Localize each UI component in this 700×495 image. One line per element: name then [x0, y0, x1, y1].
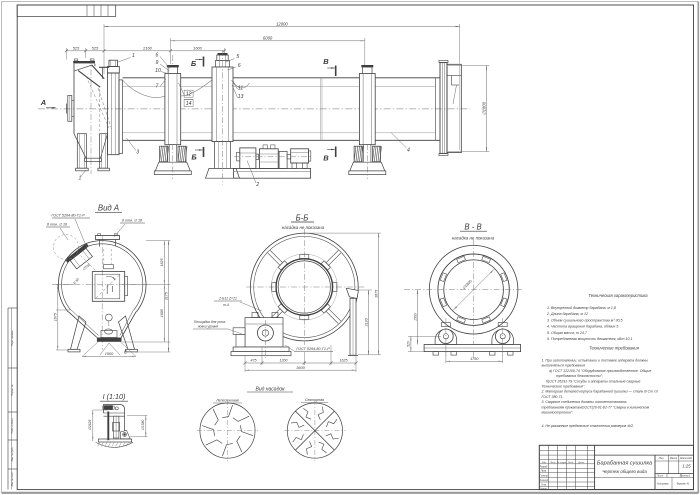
svg-text:Листов 1: Листов 1: [679, 475, 691, 478]
svg-text:6000: 6000: [263, 36, 273, 41]
svg-text:Лист: Лист: [656, 475, 663, 478]
svg-text:1625: 1625: [340, 359, 348, 363]
svg-text:3. Сварные соединения должны с: 3. Сварные соединения должны соответство…: [542, 400, 627, 404]
svg-text:12000: 12000: [276, 21, 288, 26]
svg-text:Секторная: Секторная: [305, 398, 324, 402]
svg-text:Пров.: Пров.: [541, 471, 547, 473]
svg-text:В: В: [323, 57, 329, 66]
svg-text:3675: 3675: [374, 290, 378, 298]
svg-text:2: 2: [255, 182, 259, 188]
svg-text:А: А: [40, 98, 46, 107]
svg-text:т-4: т-4: [223, 303, 229, 307]
svg-text:2. Длина барабана, м 12: 2. Длина барабана, м 12: [546, 312, 588, 316]
svg-text:насадка не показана: насадка не показана: [452, 236, 495, 241]
svg-text:Площадка для уста-: Площадка для уста-: [194, 320, 227, 324]
svg-text:Т.контр.: Т.контр.: [539, 475, 549, 477]
svg-text:ГОСТ 5264-80-Т1-Р: ГОСТ 5264-80-Т1-Р: [296, 347, 330, 351]
svg-text:Технические требования".: Технические требования".: [542, 385, 586, 389]
svg-text:Справ. №: Справ. №: [11, 384, 14, 395]
svg-text:1750: 1750: [470, 357, 479, 361]
svg-text:Чертеж общего вида: Чертеж общего вида: [602, 469, 647, 474]
svg-text:4. Частота вращения барабана,: 4. Частота вращения барабана, об/мин 5: [547, 325, 618, 329]
svg-text:1. Внутренний диаметр барабана: 1. Внутренний диаметр барабана, м 1,8: [547, 306, 616, 310]
svg-text:525: 525: [73, 45, 80, 50]
svg-text:Дата: Дата: [577, 462, 585, 464]
svg-text:∅1800: ∅1800: [481, 101, 486, 115]
svg-text:12: 12: [186, 92, 192, 98]
svg-text:машиностроении".: машиностроении".: [542, 411, 574, 415]
svg-text:475: 475: [251, 359, 257, 363]
svg-text:11: 11: [238, 86, 243, 92]
svg-text:2. Материал деталей корпуса ба: 2. Материал деталей корпуса барабанной с…: [541, 390, 658, 394]
svg-text:4: 4: [407, 148, 410, 154]
svg-text:1: 1: [132, 53, 135, 59]
svg-text:∅1580: ∅1580: [141, 420, 145, 431]
svg-text:В - В: В - В: [464, 223, 481, 232]
svg-text:9: 9: [156, 60, 159, 66]
svg-text:4. Не указанные предельные отк: 4. Не указанные предельные отклонения ра…: [542, 424, 635, 428]
svg-text:10: 10: [155, 68, 161, 74]
svg-text:1600: 1600: [193, 45, 202, 50]
svg-text:Разраб.: Разраб.: [540, 466, 549, 468]
svg-text:В: В: [323, 154, 329, 163]
svg-text:1500: 1500: [105, 352, 114, 356]
svg-text:Б-Б: Б-Б: [296, 213, 309, 222]
svg-text:13: 13: [238, 94, 244, 100]
svg-text:№ докум.: № докум.: [557, 461, 567, 464]
svg-text:выполняться требования: выполняться требования: [542, 364, 586, 368]
svg-text:8 отв. ∅ 18: 8 отв. ∅ 18: [47, 223, 67, 227]
svg-text:1. При изготовлении, испытании: 1. При изготовлении, испытании и поставк…: [542, 359, 649, 363]
svg-text:3. Объем сушильного пространст: 3. Объем сушильного пространства м³ 30,5: [547, 318, 622, 322]
svg-text:Техническая характеристика: Техническая характеристика: [588, 293, 648, 298]
svg-text:требованиям прокатамООСТ(26-01: требованиям прокатамООСТ(26-01-82-77 "Св…: [542, 405, 650, 409]
svg-text:Вид насадок: Вид насадок: [256, 387, 286, 393]
svg-text:2-Б12 Z=21: 2-Б12 Z=21: [218, 297, 237, 301]
svg-text:требования безопасности";: требования безопасности";: [556, 374, 603, 378]
svg-text:3175: 3175: [164, 292, 168, 300]
svg-text:2120: 2120: [364, 318, 368, 327]
svg-text:6: 6: [238, 63, 241, 69]
svg-text:Лит.: Лит.: [658, 457, 665, 460]
svg-text:Копировал: Копировал: [657, 484, 669, 486]
svg-text:а) ГОСТ 122100-74 "Оборудовани: а) ГОСТ 122100-74 "Оборудование производ…: [549, 369, 651, 373]
svg-text:1: 1: [78, 176, 81, 182]
svg-text:Лепестковая: Лепестковая: [215, 399, 239, 403]
svg-text:Подп.: Подп.: [568, 461, 574, 464]
svg-text:Инв. № подл.: Инв. № подл.: [11, 471, 14, 486]
svg-text:5: 5: [236, 54, 239, 60]
svg-text:Б: Б: [191, 59, 197, 68]
svg-text:Подп. и дата: Подп. и дата: [11, 418, 14, 434]
svg-text:Н.контр.: Н.контр.: [539, 480, 549, 482]
svg-text:525: 525: [92, 45, 99, 50]
svg-text:Барабанная сушилка: Барабанная сушилка: [597, 461, 652, 467]
svg-text:Перв. примен.: Перв. примен.: [11, 330, 14, 346]
svg-text:14: 14: [186, 101, 192, 107]
svg-text:насадка не показана: насадка не показана: [282, 225, 325, 230]
svg-text:∅2625: ∅2625: [88, 420, 92, 431]
svg-text:Лист: Лист: [549, 462, 556, 464]
svg-text:6: 6: [156, 53, 159, 59]
svg-text:1675: 1675: [54, 313, 58, 321]
svg-text:2160: 2160: [142, 45, 152, 50]
svg-text:Утв.: Утв.: [541, 485, 547, 487]
svg-text:1200: 1200: [280, 359, 288, 363]
svg-text:1625: 1625: [160, 259, 164, 267]
svg-text:Вид А: Вид А: [98, 204, 119, 213]
svg-text:Формат А1: Формат А1: [677, 483, 690, 486]
svg-text:ГОСТ 5264-80-Т1-Р: ГОСТ 5264-80-Т1-Р: [51, 214, 85, 218]
svg-text:Технические требования: Технические требования: [589, 345, 639, 350]
svg-text:б)ОСТ 26291-79 "Сосуды и аппар: б)ОСТ 26291-79 "Сосуды и аппараты стальн…: [546, 379, 640, 383]
svg-text:520: 520: [407, 341, 411, 347]
svg-text:новки уровня: новки уровня: [198, 325, 219, 329]
svg-text:Копир.: Копир.: [540, 488, 547, 490]
svg-text:Инв. № дубл.: Инв. № дубл.: [11, 446, 14, 461]
svg-text:3600: 3600: [296, 366, 305, 370]
svg-text:1500: 1500: [413, 313, 417, 321]
svg-text:Б: Б: [191, 153, 197, 162]
svg-text:6. Потребляемая мощность двига: 6. Потребляемая мощность двигателя, кВт …: [547, 337, 632, 341]
svg-text:Изм: Изм: [542, 462, 547, 464]
svg-text:1605: 1605: [160, 309, 164, 317]
svg-text:8 отв. ∅ 18: 8 отв. ∅ 18: [122, 219, 142, 223]
svg-text:Масса: Масса: [670, 457, 678, 460]
svg-text:Масштаб: Масштаб: [680, 457, 692, 460]
svg-text:1:25: 1:25: [682, 464, 691, 469]
svg-text:5. Общая масса, т 24,7: 5. Общая масса, т 24,7: [547, 331, 588, 335]
svg-text:I (1:10): I (1:10): [103, 392, 126, 401]
svg-text:ГОСТ 380-71.: ГОСТ 380-71.: [542, 395, 564, 399]
svg-text:3: 3: [136, 150, 139, 156]
